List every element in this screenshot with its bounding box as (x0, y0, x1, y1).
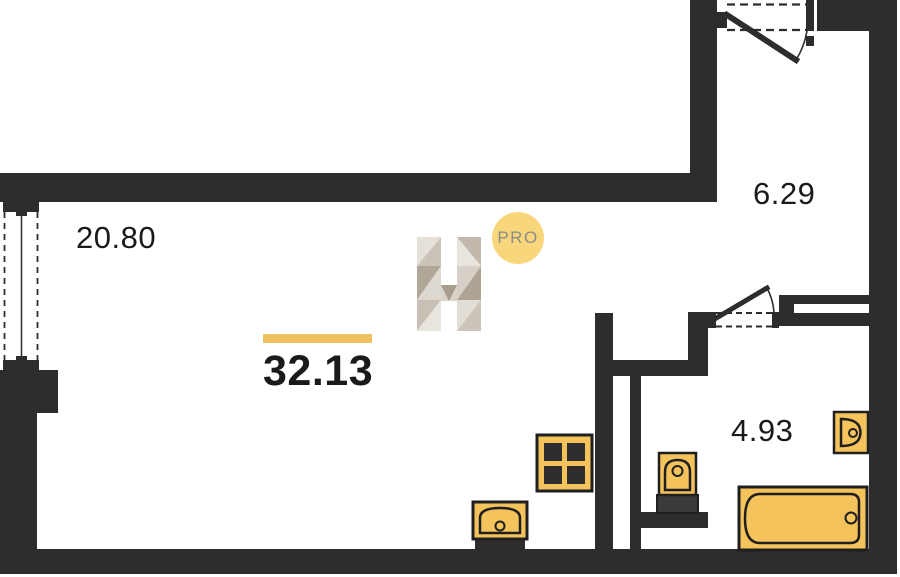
bathtub-icon (739, 487, 867, 550)
total-area-value: 32.13 (263, 350, 373, 393)
shaft-wall (630, 376, 641, 549)
duct-slot (794, 304, 869, 313)
top-wall (0, 173, 717, 202)
floor-plan-drawing (0, 0, 900, 577)
toilet-back-wall (641, 512, 708, 528)
bathroom-area-label: 4.93 (731, 415, 793, 446)
living-room-area-label: 20.80 (76, 222, 156, 253)
washbasin-body (834, 412, 868, 453)
total-area: 32.13 (263, 334, 373, 393)
bathroom-door-leaf (713, 288, 767, 320)
cooktop-icon (537, 435, 592, 491)
entry-latch (806, 36, 814, 46)
pro-badge-label: PRO (497, 228, 538, 248)
kitchen-bath-wall (595, 313, 613, 549)
floor-plan: PRO 20.80 6.29 4.93 32.13 (0, 0, 900, 577)
bathroom-door-icon (713, 288, 774, 327)
total-area-accent-bar (263, 334, 372, 343)
left-wall-lower (0, 370, 37, 549)
balcony-window-icon (5, 206, 38, 366)
bottom-wall (0, 549, 897, 574)
pro-badge: PRO (492, 212, 544, 264)
bathroom-door-swing-arc (767, 288, 774, 312)
entrance-door-swing-arc (796, 31, 807, 60)
entrance-door-leaf (727, 15, 796, 60)
kitchen-sink-icon (473, 502, 527, 549)
bath-left-wall (688, 312, 708, 376)
bathtub-body (739, 487, 867, 550)
right-wall (869, 0, 897, 574)
hallway-area-label: 6.29 (753, 178, 815, 209)
entry-right-jamb (806, 0, 814, 31)
bath-door-right-jamb (772, 312, 779, 328)
window-stop-top (16, 206, 27, 216)
washbasin-icon (834, 412, 868, 453)
toilet-tank (657, 495, 698, 513)
entrance-door-icon (727, 5, 807, 61)
logo-h-icon (417, 237, 481, 331)
window-stop-bottom (16, 356, 27, 366)
toilet-icon (657, 453, 698, 513)
entry-left-wall (690, 0, 717, 202)
niche-connector-wall (613, 360, 688, 376)
